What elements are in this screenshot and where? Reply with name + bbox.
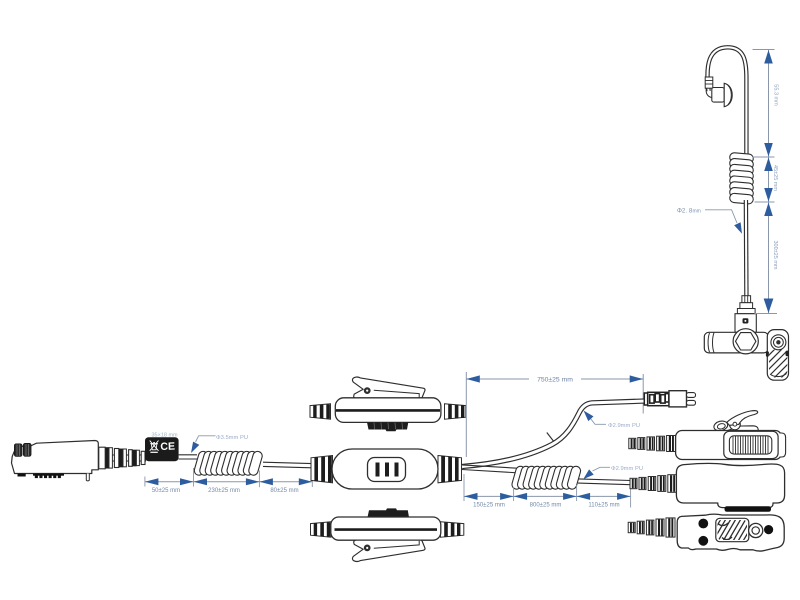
svg-text:800±25 mm: 800±25 mm — [530, 502, 562, 508]
svg-text:mm: mm — [693, 209, 701, 215]
svg-text:Φ2.9mm PU: Φ2.9mm PU — [608, 423, 640, 429]
svg-text:750±25 mm: 750±25 mm — [537, 377, 573, 384]
svg-text:80±25 mm: 80±25 mm — [270, 488, 298, 494]
svg-text:230±25 mm: 230±25 mm — [208, 488, 240, 494]
svg-text:Φ2. 8: Φ2. 8 — [677, 208, 693, 215]
svg-text:Φ3.5mm PU: Φ3.5mm PU — [216, 435, 248, 441]
svg-text:300±25 mm: 300±25 mm — [772, 240, 778, 269]
svg-text:45±25 mm: 45±25 mm — [772, 165, 778, 191]
svg-text:150±25 mm: 150±25 mm — [473, 502, 505, 508]
svg-text:Φ2.9mm PU: Φ2.9mm PU — [611, 466, 643, 472]
svg-text:110±25 mm: 110±25 mm — [588, 502, 619, 508]
svg-text:50±25 mm: 50±25 mm — [152, 488, 180, 494]
svg-text:CE: CE — [160, 440, 175, 453]
svg-text:55.3 mm: 55.3 mm — [773, 84, 779, 106]
